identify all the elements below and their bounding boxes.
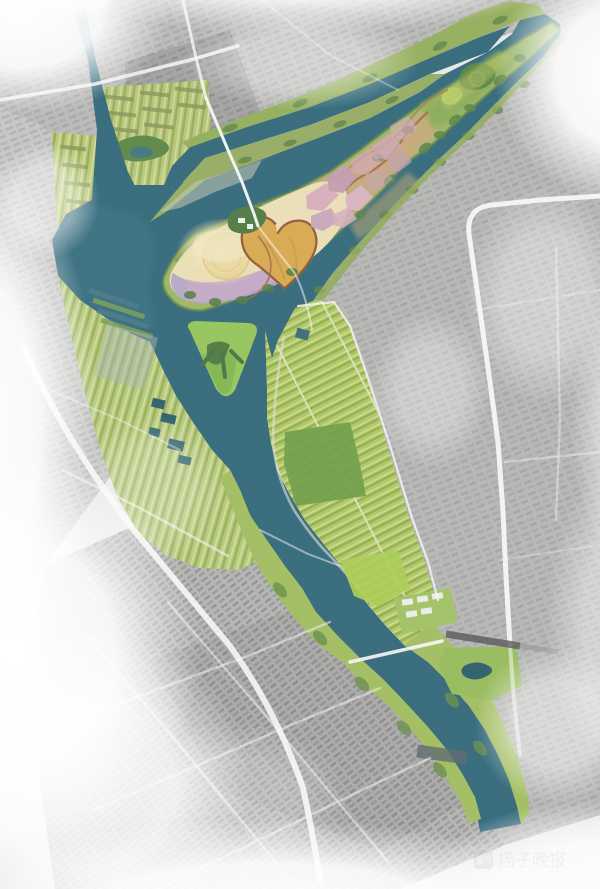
svg-text:紫牛: 紫牛: [476, 855, 494, 866]
svg-text:扬子晚报: 扬子晚报: [498, 851, 566, 870]
